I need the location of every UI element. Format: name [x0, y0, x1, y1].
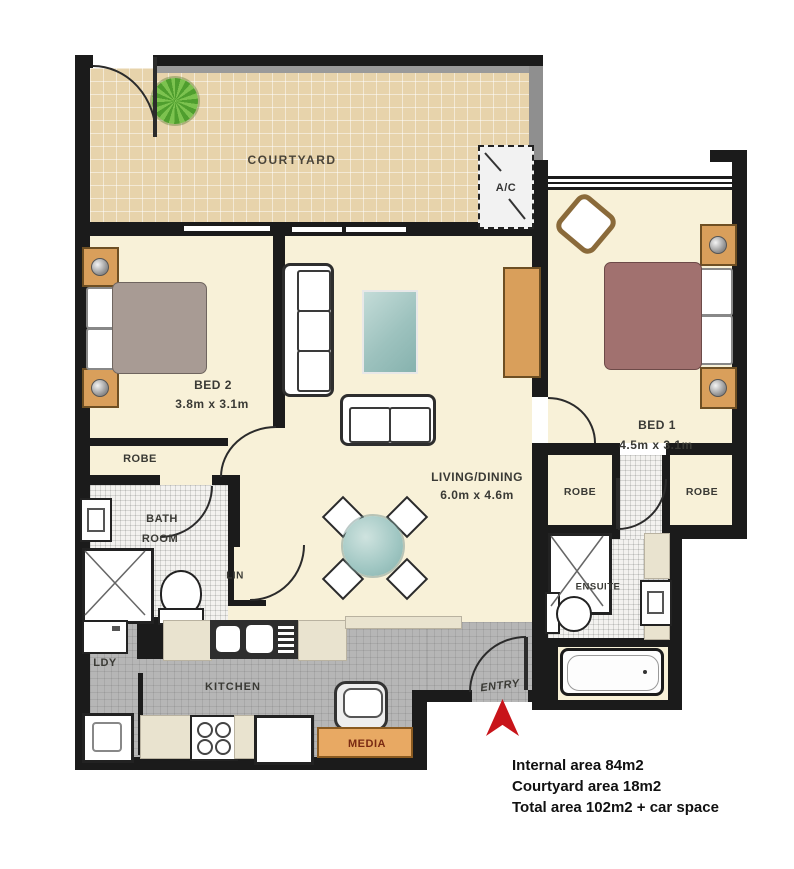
lamp-icon — [91, 379, 109, 397]
area-internal: Internal area 84m2 — [512, 755, 719, 776]
bed1-dims: 4.5m x 3.1m — [619, 438, 693, 452]
bathroom-label-line1: BATH — [146, 513, 178, 525]
robe-bed1-right-label: ROBE — [686, 486, 718, 498]
lamp-icon — [709, 236, 727, 254]
robe-bed2-label: ROBE — [123, 453, 157, 465]
area-summary: Internal area 84m2 Courtyard area 18m2 T… — [512, 755, 719, 818]
kitchen-sink-unit — [210, 620, 298, 659]
wall-bathroom-right — [228, 475, 240, 547]
ac-label: A/C — [496, 182, 516, 194]
wall-tub-bottom — [548, 700, 682, 710]
sofa-cushion — [297, 310, 331, 352]
bathtub — [560, 648, 664, 696]
ensuite-bench-top — [644, 533, 670, 579]
floor-plan: A/C — [0, 0, 794, 869]
ensuite-label: ENSUITE — [576, 582, 621, 593]
media-cabinet: MEDIA — [317, 727, 413, 758]
fridge — [254, 715, 314, 765]
bed1-nightstand-top — [700, 224, 737, 266]
bed2-bed — [112, 282, 207, 374]
entry-arrow-icon — [486, 699, 519, 736]
kitchen-breakfast-bar — [345, 616, 462, 629]
sofa-three-seat — [282, 263, 334, 397]
wall-bathroom-top-left — [75, 475, 160, 485]
burner-icon — [197, 722, 213, 738]
wall-kitchen-right — [412, 690, 427, 770]
bed1-passage-floor — [620, 455, 662, 539]
living-window-1 — [292, 227, 342, 232]
bed2-nightstand-top — [82, 247, 119, 287]
sink-bowl-icon — [216, 626, 240, 652]
bed1-window-glass-line — [548, 182, 732, 184]
living-dims: 6.0m x 4.6m — [440, 488, 514, 502]
bed2-window — [184, 226, 270, 231]
sofa-cushion — [389, 407, 431, 443]
area-total: Total area 102m2 + car space — [512, 797, 719, 818]
wall-bed1-top-stub — [710, 150, 747, 162]
burner-icon — [215, 722, 231, 738]
drain-icon — [643, 670, 647, 674]
robe-bed1-left-label: ROBE — [564, 486, 596, 498]
wall-living-east — [532, 455, 548, 710]
bed1-window — [548, 176, 732, 190]
wall-linen-bottom — [228, 600, 266, 606]
sofa-two-seat — [340, 394, 436, 446]
faucet-icon — [112, 626, 120, 631]
bed2-label: BED 2 — [194, 378, 232, 392]
kitchen-bench-1 — [163, 620, 212, 661]
kitchen-bench-3 — [140, 715, 192, 759]
wall-left — [75, 55, 90, 770]
bathroom-label-line2: ROOM — [142, 533, 178, 545]
courtyard-fence-top — [157, 66, 529, 73]
wall-tub-left — [548, 645, 558, 703]
rug — [362, 290, 418, 374]
plant-icon — [152, 78, 198, 124]
bathroom-shower — [82, 548, 154, 624]
burner-icon — [215, 739, 231, 755]
cooktop — [190, 715, 238, 761]
area-courtyard: Courtyard area 18m2 — [512, 776, 719, 797]
bed1-nightstand-bottom — [700, 367, 737, 409]
laundry-tub — [82, 620, 128, 654]
wall-bathroom-top-right — [212, 475, 228, 485]
media-chair-back — [343, 688, 383, 718]
kitchen-bench-2 — [298, 620, 347, 661]
courtyard-door-opening — [93, 55, 153, 68]
bed2-dims: 3.8m x 3.1m — [175, 397, 249, 411]
ensuite-bench-bottom — [644, 624, 670, 640]
courtyard-label: COURTYARD — [247, 153, 336, 167]
wall-robe-right-bottom — [662, 525, 747, 539]
dining-table — [343, 516, 403, 576]
washer-door-icon — [92, 722, 122, 752]
sink-bowl-icon — [246, 625, 273, 653]
media-chair — [334, 681, 388, 731]
sofa-cushion — [297, 270, 331, 312]
bed1-pillow — [697, 315, 733, 365]
linen-label: LIN — [226, 571, 244, 582]
ensuite-toilet — [556, 596, 592, 632]
washing-machine — [82, 713, 134, 763]
wall-entry-bottom-right — [528, 690, 542, 702]
bed1-bed — [604, 262, 702, 370]
bed2-nightstand-bottom — [82, 368, 119, 408]
sofa-cushion — [349, 407, 391, 443]
lamp-icon — [91, 258, 109, 276]
living-window-2 — [346, 227, 406, 232]
burner-icon — [197, 739, 213, 755]
ensuite-vanity — [640, 580, 672, 626]
sink-icon — [647, 591, 664, 614]
bathroom-vanity — [80, 498, 112, 542]
dish-drainer-icon — [278, 626, 294, 653]
wall-robe2-top — [75, 438, 228, 446]
laundry-label: LDY — [93, 657, 117, 669]
lamp-icon — [709, 379, 727, 397]
tv-unit — [503, 267, 541, 378]
sink-icon — [87, 508, 105, 532]
sofa-cushion — [297, 350, 331, 392]
wall-entry-bottom-left — [420, 690, 472, 702]
media-label: MEDIA — [348, 738, 386, 750]
living-label: LIVING/DINING — [431, 470, 523, 484]
bed1-pillow — [697, 268, 733, 316]
bed1-label: BED 1 — [638, 418, 676, 432]
wall-bed1-east — [732, 150, 747, 535]
wall-bed1-south-left — [532, 443, 620, 455]
kitchen-bench-4 — [234, 715, 256, 759]
kitchen-label: KITCHEN — [205, 681, 261, 693]
